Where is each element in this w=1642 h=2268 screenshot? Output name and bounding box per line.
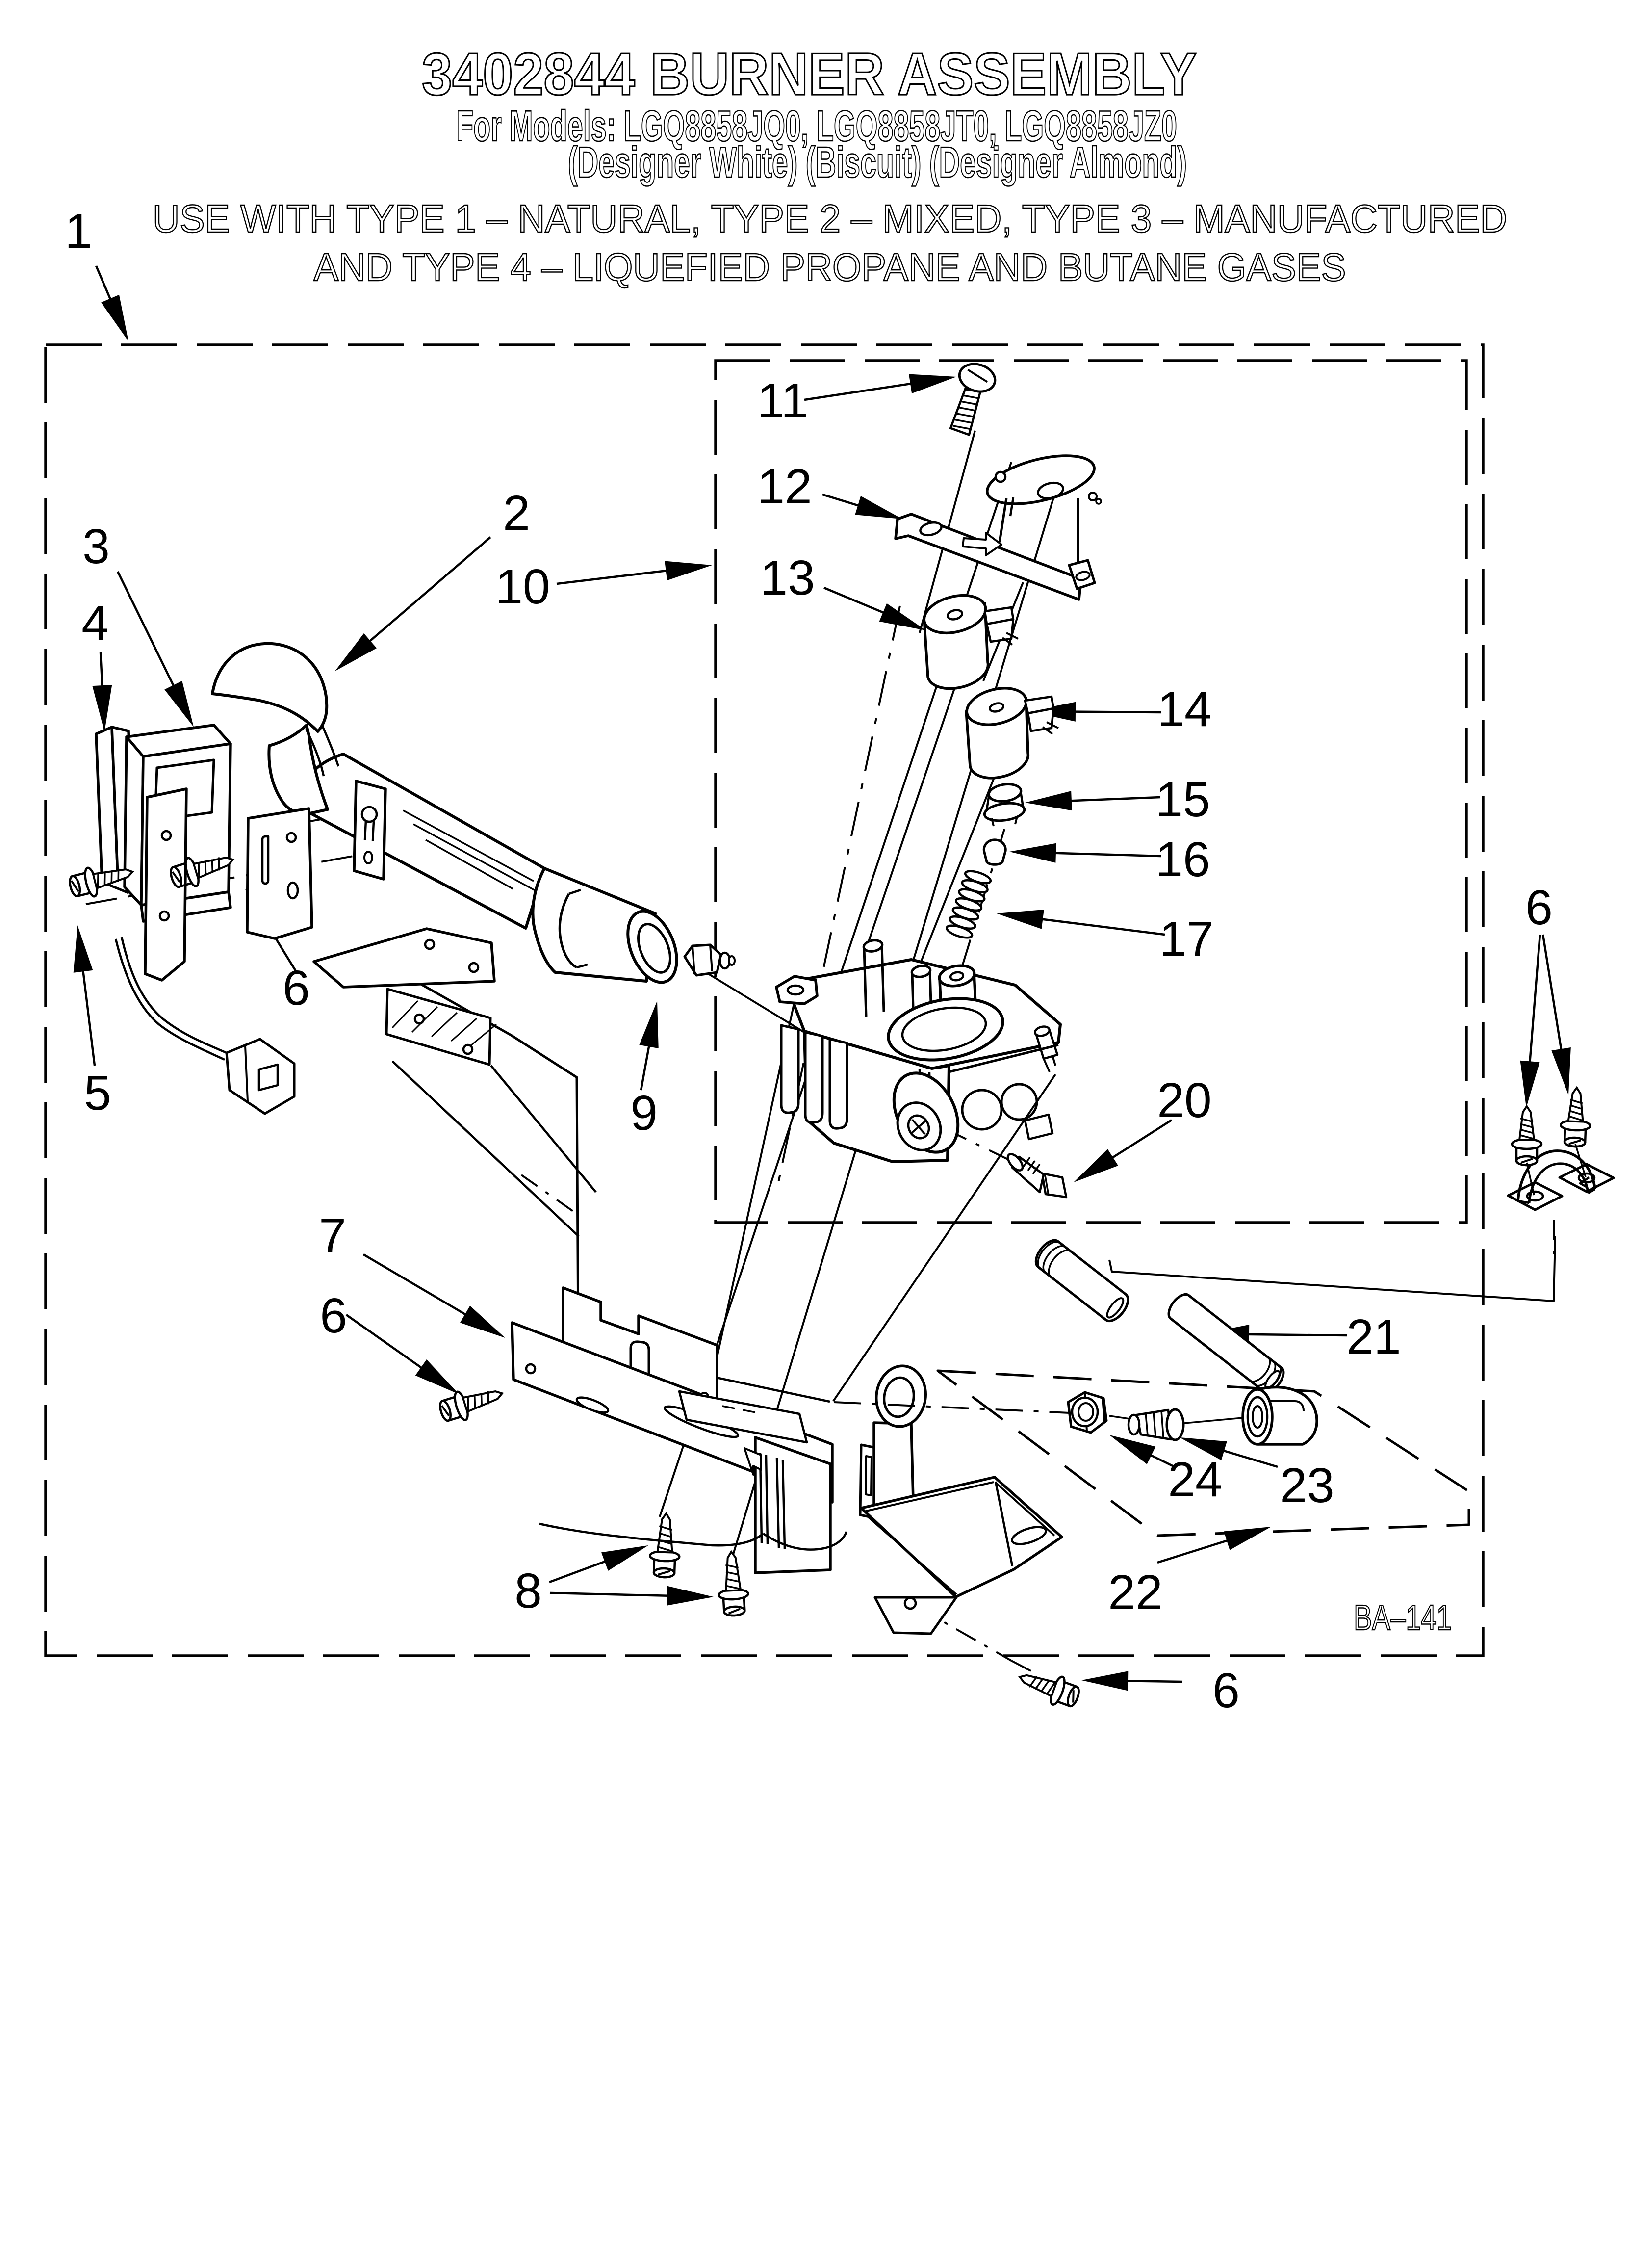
svg-text:10: 10 bbox=[495, 559, 550, 614]
svg-text:23: 23 bbox=[1280, 1458, 1334, 1513]
svg-text:17: 17 bbox=[1159, 912, 1213, 966]
svg-text:15: 15 bbox=[1155, 772, 1210, 827]
svg-text:7: 7 bbox=[319, 1208, 346, 1263]
svg-text:9: 9 bbox=[630, 1086, 658, 1141]
svg-text:11: 11 bbox=[757, 373, 808, 428]
svg-text:14: 14 bbox=[1157, 682, 1211, 737]
svg-text:USE WITH TYPE 1 – NATURAL, TYP: USE WITH TYPE 1 – NATURAL, TYPE 2 – MIXE… bbox=[153, 197, 1507, 240]
svg-text:6: 6 bbox=[1525, 880, 1553, 935]
svg-text:AND TYPE 4 – LIQUEFIED PROPANE: AND TYPE 4 – LIQUEFIED PROPANE AND BUTAN… bbox=[314, 245, 1346, 289]
svg-text:(Designer White) (Biscuit) (: (Designer White) (Biscuit) (Designer Alm… bbox=[568, 138, 1187, 186]
svg-text:3402844 BURNER ASSEMBLY: 3402844 BURNER ASSEMBLY bbox=[422, 41, 1197, 107]
svg-text:2: 2 bbox=[503, 486, 530, 541]
svg-text:5: 5 bbox=[84, 1066, 111, 1121]
svg-text:6: 6 bbox=[282, 961, 310, 1016]
svg-text:12: 12 bbox=[757, 459, 812, 514]
svg-text:6: 6 bbox=[1212, 1663, 1240, 1718]
svg-text:24: 24 bbox=[1168, 1452, 1222, 1507]
svg-text:20: 20 bbox=[1157, 1073, 1211, 1128]
svg-text:4: 4 bbox=[81, 596, 109, 651]
svg-text:1: 1 bbox=[65, 204, 92, 259]
svg-text:13: 13 bbox=[760, 550, 815, 605]
svg-text:16: 16 bbox=[1155, 832, 1210, 887]
svg-text:21: 21 bbox=[1346, 1309, 1401, 1364]
svg-text:BA–141: BA–141 bbox=[1354, 1598, 1452, 1638]
svg-text:22: 22 bbox=[1108, 1565, 1162, 1620]
svg-text:6: 6 bbox=[320, 1288, 347, 1343]
svg-text:8: 8 bbox=[514, 1564, 542, 1618]
svg-text:3: 3 bbox=[82, 519, 110, 574]
